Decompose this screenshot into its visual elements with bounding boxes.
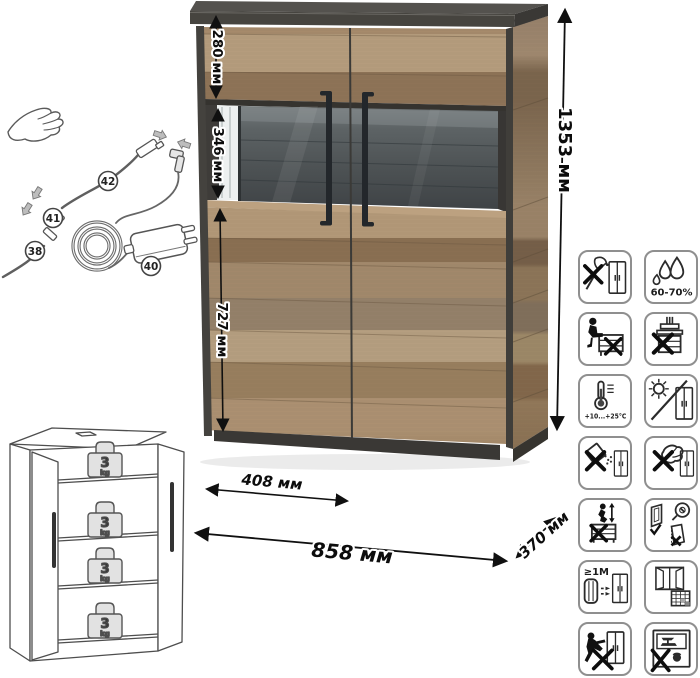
callout-38: 38: [26, 242, 45, 261]
left-handle: [326, 92, 332, 225]
right-handle: [362, 93, 368, 226]
humidity-label: 60-70%: [650, 287, 692, 298]
no-abrasive-icon: [647, 439, 696, 488]
callout-42: 42: [99, 172, 118, 191]
dimension-370: 370 мм: [515, 508, 572, 562]
dimension-408-label: 408 мм: [240, 470, 303, 493]
callout-40: 40: [142, 257, 161, 276]
front-right-edge: [506, 27, 513, 449]
schematic-left-handle: [52, 512, 56, 568]
heater-distance-icon: ≥1M: [581, 563, 630, 612]
care-icon-no-sunlight: [644, 374, 698, 428]
adjust-doors-icon: [647, 501, 696, 550]
dimension-370-label: 370 мм: [515, 508, 572, 562]
care-icon-no-sitting: [578, 312, 632, 366]
no-pressing-icon: [647, 315, 696, 364]
callout-38-number: 38: [28, 246, 43, 258]
cable-assembly-diagram: 42 41 38 40: [3, 108, 199, 277]
product-diagram: 42 41 38 40 3: [0, 0, 700, 678]
no-sitting-icon: [581, 315, 630, 364]
care-icon-no-heavy-loads: [644, 622, 698, 676]
ventilate-icon: [647, 563, 696, 612]
cabinet-render: [190, 1, 548, 470]
top-panel: [190, 1, 548, 27]
care-icon-heater-distance: ≥1M: [578, 560, 632, 614]
shelf-weight-unit: kg: [100, 575, 110, 583]
care-icon-adjust-doors: [644, 498, 698, 552]
no-chopping-icon: [581, 253, 630, 302]
dimension-727-label: 727 мм: [214, 303, 230, 358]
distance-label: ≥1M: [583, 566, 608, 577]
care-icon-temperature: +10...+25°C: [578, 374, 632, 428]
shelf-weight-unit: kg: [100, 469, 110, 477]
dimension-1353-label: 1353 мм: [554, 107, 575, 193]
no-pushing-icon: [581, 625, 630, 674]
dimension-858: 858 мм: [196, 533, 506, 569]
care-icon-grid: 60-70% +10...+25°: [578, 250, 698, 676]
schematic-left-side: [10, 444, 30, 661]
dimension-1353: 1353 мм: [554, 10, 575, 429]
callout-40-number: 40: [144, 261, 159, 273]
temperature-label: +10...+25°C: [584, 411, 626, 420]
hand-icon: [8, 108, 63, 141]
care-icon-no-pressing: [644, 312, 698, 366]
cable-coil: [73, 222, 121, 270]
shelf-weight-unit: kg: [100, 529, 110, 537]
callout-41: 41: [44, 209, 63, 228]
dc-plug-icon: [169, 149, 184, 173]
no-heavy-loads-icon: [647, 625, 696, 674]
dimension-408: 408 мм: [207, 470, 347, 501]
care-icon-no-climbing: [578, 498, 632, 552]
dimension-346-label: 346 мм: [210, 128, 226, 183]
cable-connector-42: [136, 139, 164, 159]
temperature-icon: +10...+25°C: [581, 377, 630, 426]
care-icon-no-abrasive: [644, 436, 698, 490]
callout-41-number: 41: [46, 213, 61, 225]
care-icon-no-liquids: [578, 436, 632, 490]
dimension-858-label: 858 мм: [310, 538, 393, 569]
open-cabinet-schematic: 3 kg 3 kg 3 kg 3 kg: [10, 428, 184, 661]
care-icon-no-pushing: [578, 622, 632, 676]
care-icon-no-chopping: [578, 250, 632, 304]
care-icon-ventilate: [644, 560, 698, 614]
power-adapter-icon: [122, 221, 200, 266]
no-sunlight-icon: [647, 377, 696, 426]
callout-42-number: 42: [101, 176, 116, 188]
care-icon-humidity: 60-70%: [644, 250, 698, 304]
no-climbing-icon: [581, 501, 630, 550]
no-liquids-icon: [581, 439, 630, 488]
humidity-icon: 60-70%: [647, 253, 696, 302]
shelf-weight-unit: kg: [100, 630, 110, 638]
power-cord: [116, 172, 179, 223]
vitrine-section: [204, 105, 506, 212]
dimension-280-label: 280 мм: [209, 30, 225, 85]
schematic-right-handle: [170, 482, 174, 552]
